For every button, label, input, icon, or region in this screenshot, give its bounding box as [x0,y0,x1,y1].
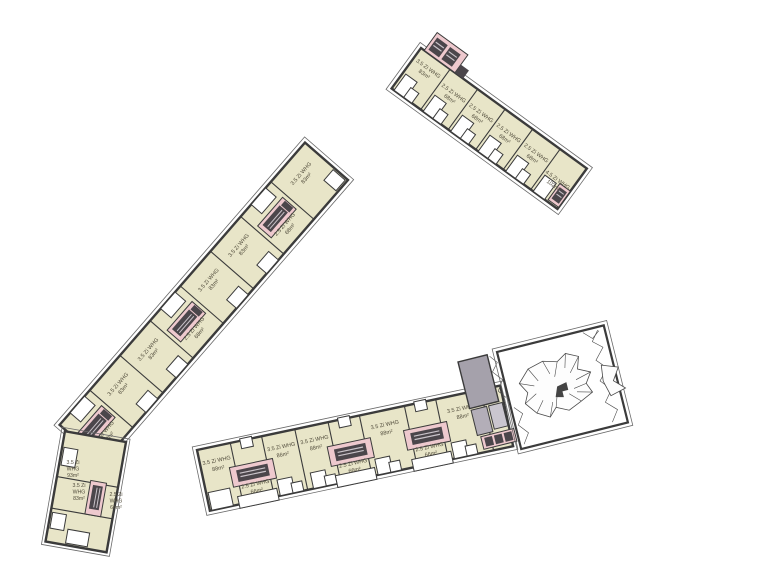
balcony-notch [465,444,478,456]
floor-plan-canvas: 3.5 Zi WHG 83m² 2.5 Zi WHG 68m² 2.5 Zi W… [0,0,780,587]
north-wing: 3.5 Zi WHG 83m² 2.5 Zi WHG 68m² 2.5 Zi W… [386,28,603,215]
balcony-notch [50,512,67,530]
unit-label-whg: WHG [73,490,86,496]
entry-notch [240,436,254,448]
balcony-notch [291,481,304,493]
entry-notch [414,399,428,411]
unit-label-whg: WHG [110,499,123,505]
site-plan: 3.5 Zi WHG 83m² 2.5 Zi WHG 68m² 2.5 Zi W… [0,0,780,587]
entry-notch [337,416,351,428]
unit-label-rooms: 2.5 Zi [110,492,123,498]
unit-label-area: 83m² [73,496,85,502]
balcony-notch [389,460,402,472]
unit-label-whg: WHG [67,467,80,473]
unit-label-rooms: 3.5 Zi [67,460,80,466]
unit-label-rooms: 3.5 Zi [73,483,86,489]
west-wing: 3.5 Zi WHG 83m² 2.5 Zi WHG 68m² 3.5 Zi W… [54,137,354,468]
balcony-notch [208,488,233,510]
unit-label-area: 93m² [67,473,79,479]
unit-label-area: 66m² [110,505,122,511]
courtyard [492,320,635,454]
